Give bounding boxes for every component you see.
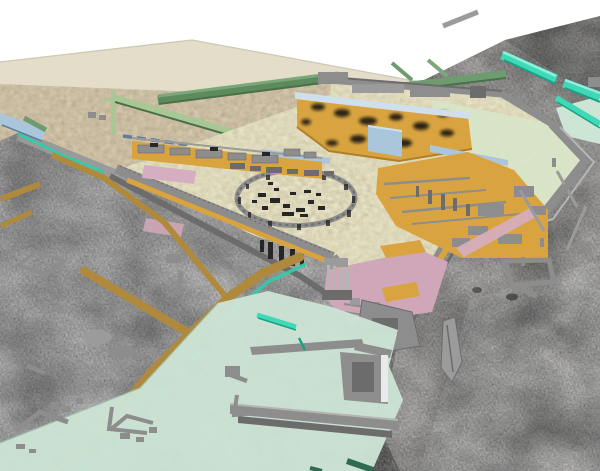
building: [170, 148, 190, 155]
pier-block-inner: [352, 362, 374, 392]
post: [428, 190, 432, 204]
mound: [82, 330, 112, 344]
post: [260, 240, 264, 252]
stone: [258, 193, 266, 197]
ruin-block: [149, 427, 157, 433]
dark-spot: [506, 294, 518, 301]
building: [250, 166, 261, 171]
mound: [109, 346, 135, 358]
building: [304, 170, 319, 176]
gate-pillar: [327, 265, 330, 289]
dark-spot: [472, 287, 482, 293]
ruin-block: [29, 449, 36, 453]
ruin-block: [16, 444, 25, 449]
post: [552, 158, 556, 167]
building: [284, 149, 300, 156]
post: [540, 238, 544, 247]
post: [441, 194, 445, 210]
post: [453, 198, 457, 211]
stone: [316, 193, 321, 196]
spot: [301, 119, 311, 125]
stone: [262, 206, 268, 210]
post: [466, 204, 470, 216]
building: [304, 152, 316, 158]
stone: [300, 214, 308, 217]
gray-block-east-edge: [588, 77, 600, 87]
stone: [282, 212, 294, 216]
spot: [334, 109, 350, 117]
ring-post: [352, 196, 355, 203]
gate-pillar: [333, 266, 336, 293]
ring-post: [238, 197, 241, 204]
ring-post: [246, 184, 249, 189]
ruin-block: [136, 437, 144, 442]
stone: [290, 192, 296, 195]
ruin-block: [166, 254, 181, 263]
spot: [326, 140, 338, 146]
stone: [268, 182, 273, 185]
ring-post: [297, 224, 301, 230]
spot: [389, 114, 403, 121]
gate-base: [322, 290, 352, 300]
wall-tower: [470, 86, 486, 98]
site-model-canvas: [0, 0, 600, 471]
building: [324, 171, 334, 176]
stone: [283, 204, 290, 208]
ruin-block: [88, 112, 96, 118]
ring-post: [248, 212, 251, 218]
ring-post: [266, 175, 270, 180]
stone: [318, 206, 325, 210]
stone: [252, 200, 257, 203]
spot: [350, 135, 366, 143]
building: [196, 150, 222, 158]
wall-block: [352, 84, 404, 93]
building: [230, 163, 245, 169]
white-pillar: [381, 355, 388, 402]
building: [266, 167, 282, 173]
post: [268, 242, 273, 259]
ruin-block: [63, 406, 71, 412]
stone: [296, 208, 305, 212]
dark-feature: [150, 143, 158, 147]
ruin-block: [99, 115, 106, 120]
post: [416, 186, 419, 197]
building: [287, 169, 298, 174]
spot: [413, 122, 429, 130]
building: [252, 155, 278, 163]
post: [564, 184, 568, 193]
spot: [440, 130, 454, 137]
post: [521, 257, 525, 266]
stone: [304, 190, 311, 193]
building: [478, 204, 504, 216]
ring-post: [344, 184, 348, 190]
wall-block: [410, 88, 450, 97]
ring-post: [326, 220, 330, 226]
ruin-block: [50, 402, 59, 409]
ruin-block: [120, 433, 130, 439]
stone: [308, 200, 314, 204]
wall-block: [318, 72, 348, 84]
ring-post: [347, 210, 351, 217]
stone: [274, 188, 279, 191]
spot: [359, 117, 377, 125]
dark-feature: [262, 152, 270, 156]
spot: [311, 104, 325, 111]
site-model-render: [0, 0, 600, 471]
stone: [270, 198, 280, 203]
ruin-block: [76, 399, 83, 404]
dark-feature: [210, 147, 218, 151]
building: [228, 153, 246, 160]
